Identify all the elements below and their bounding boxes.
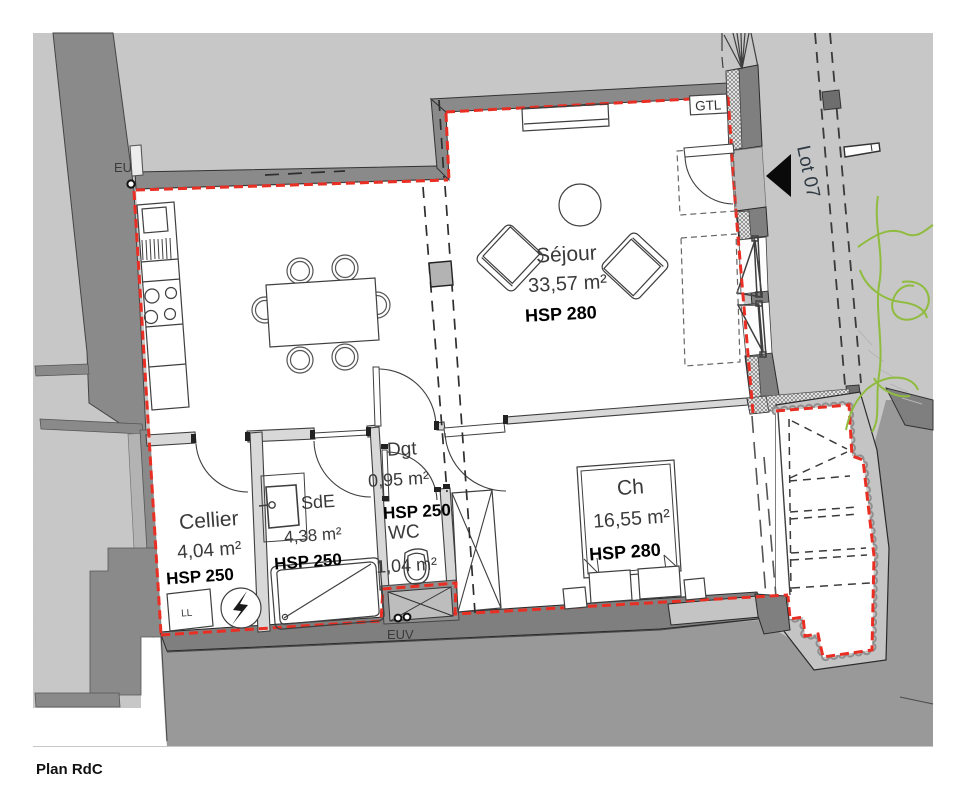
svg-text:HSP 280: HSP 280	[525, 302, 598, 326]
svg-text:4,04 m²: 4,04 m²	[176, 538, 242, 563]
svg-text:EU: EU	[114, 160, 132, 175]
svg-text:Plan RdC: Plan RdC	[36, 761, 103, 778]
svg-text:HSP 250: HSP 250	[383, 500, 452, 523]
svg-text:Séjour: Séjour	[535, 242, 597, 268]
svg-text:LL: LL	[181, 608, 193, 620]
svg-text:SdE: SdE	[300, 491, 335, 513]
svg-text:GTL: GTL	[695, 97, 722, 113]
svg-text:4,38 m²: 4,38 m²	[284, 524, 343, 547]
svg-text:Ch: Ch	[616, 475, 644, 500]
svg-text:0,95 m²: 0,95 m²	[368, 468, 430, 491]
svg-text:EUV: EUV	[387, 627, 414, 642]
svg-text:WC: WC	[388, 521, 421, 544]
svg-text:1,04 m²: 1,04 m²	[376, 554, 438, 577]
svg-text:Cellier: Cellier	[178, 507, 239, 534]
svg-text:33,57 m²: 33,57 m²	[528, 271, 608, 297]
svg-text:Dgt: Dgt	[387, 438, 418, 461]
